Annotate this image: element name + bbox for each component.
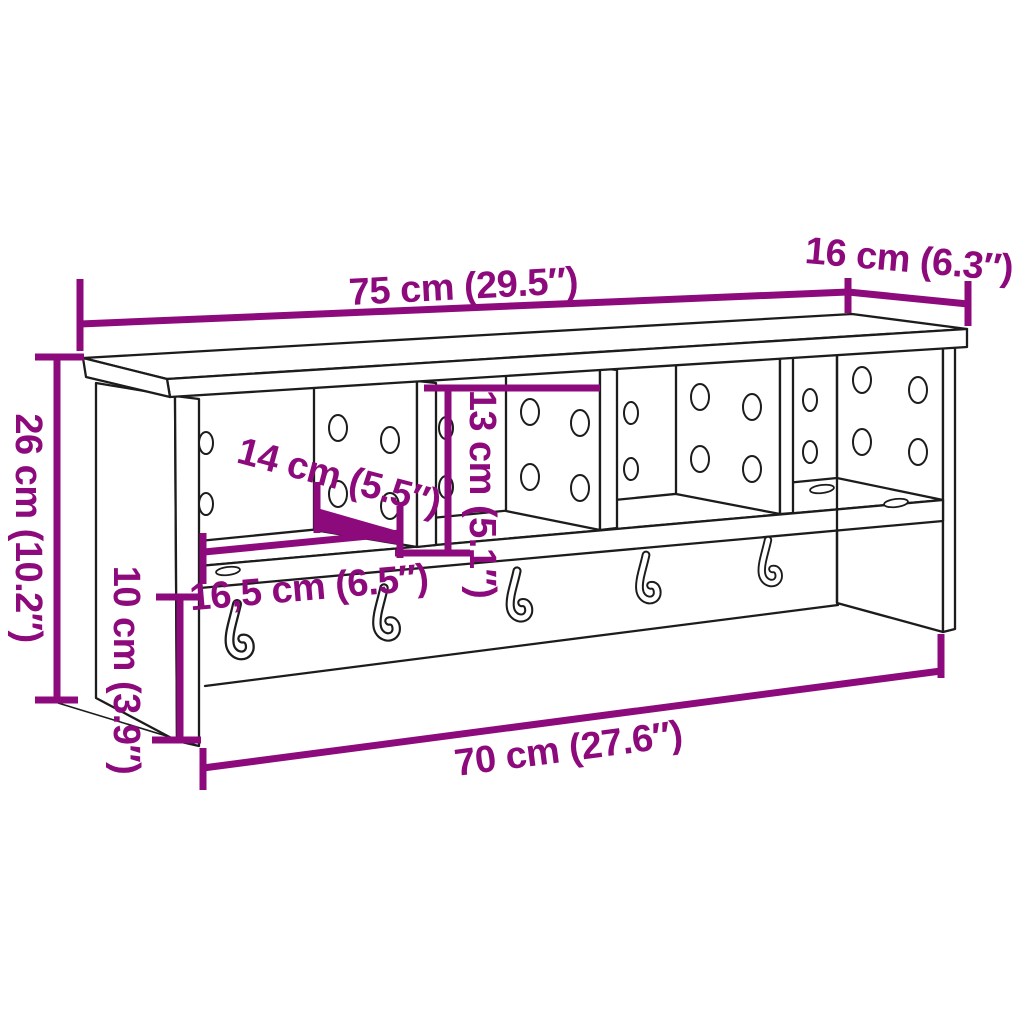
divider-2 [506, 357, 617, 530]
divider-3 [676, 347, 793, 514]
label-rail-height: 10 cm (3.9″) [105, 566, 147, 775]
dimension-diagram: 75 cm (29.5″) 16 cm (6.3″) 26 cm (10.2″)… [0, 0, 1024, 1024]
label-compartment-height: 13 cm (5.1″) [461, 390, 503, 599]
label-total-height: 26 cm (10.2″) [7, 413, 49, 642]
